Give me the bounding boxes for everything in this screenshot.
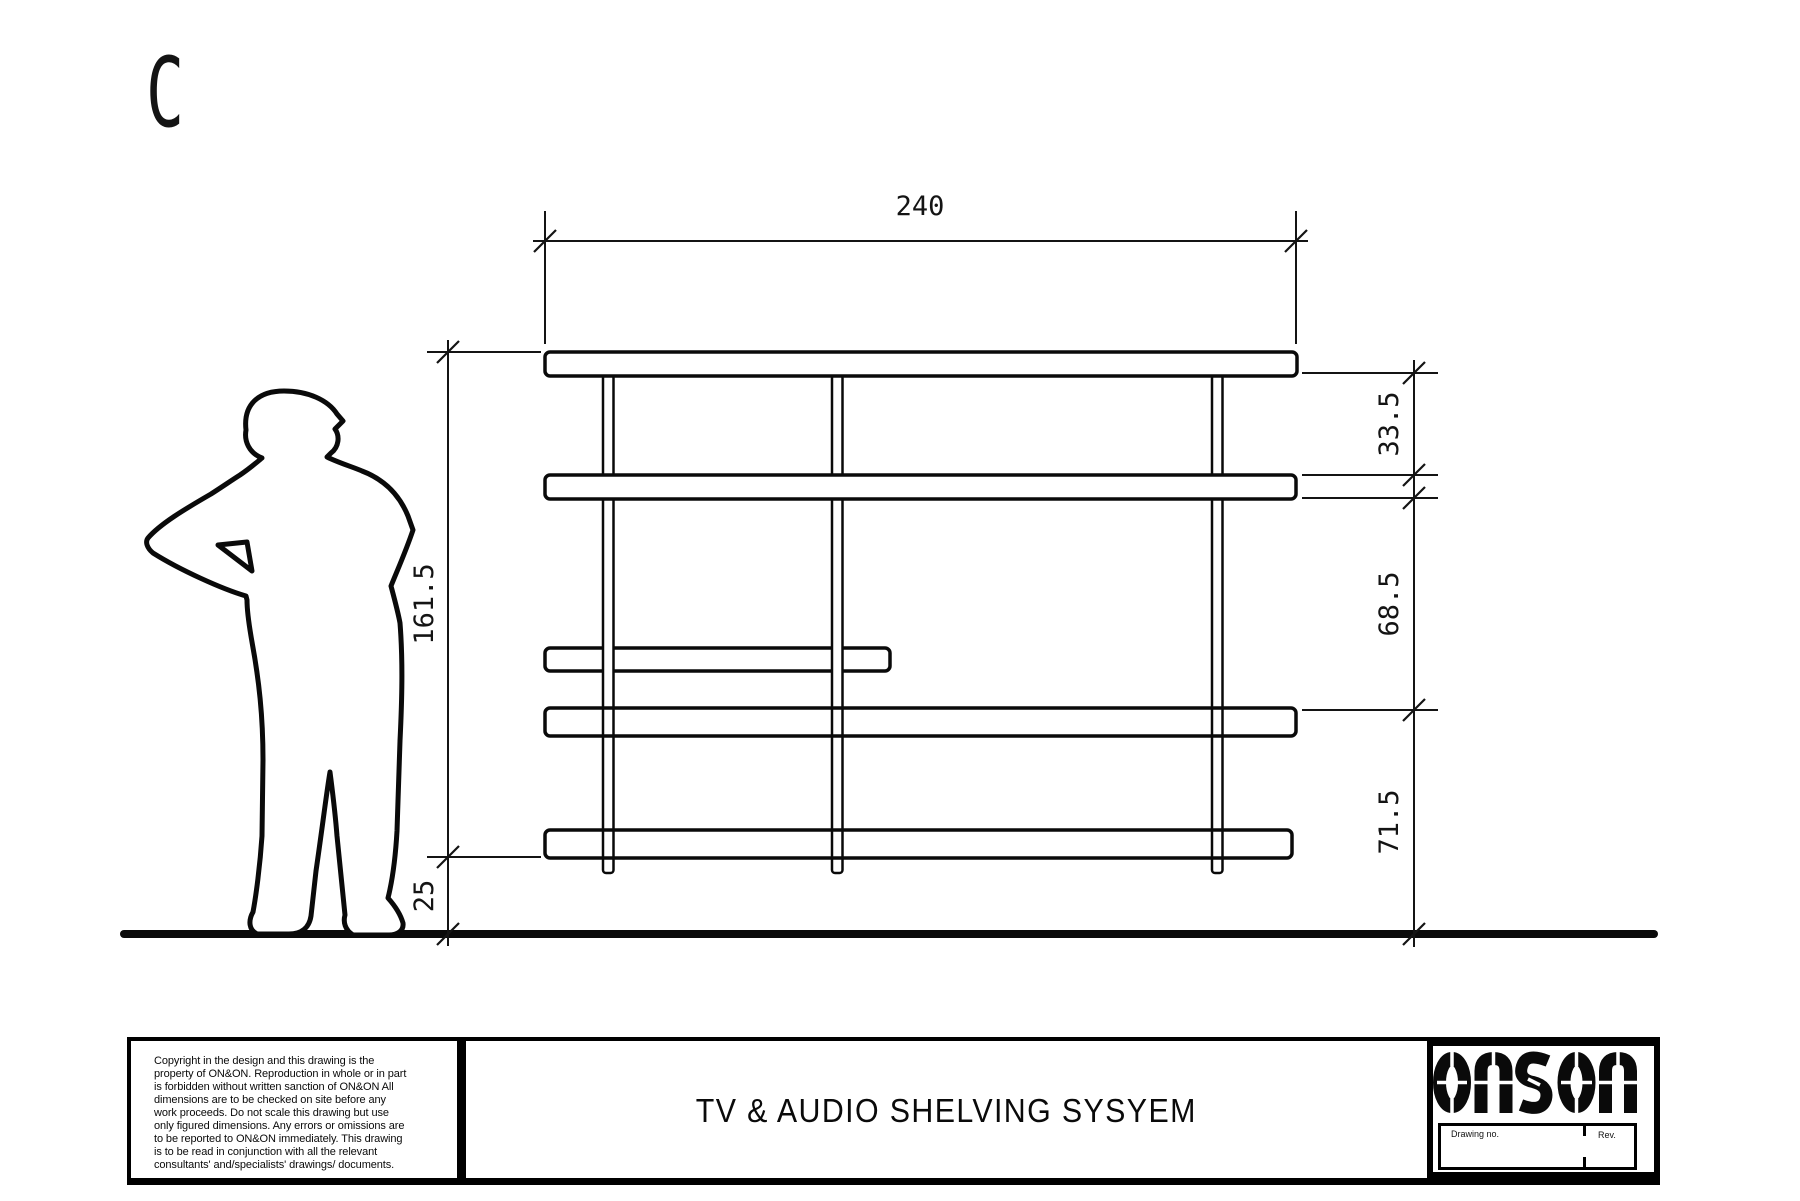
drawing-title: TV & AUDIO SHELVING SYSYEM [696, 1092, 1197, 1130]
dimension-right [1302, 360, 1438, 947]
copyright-line: is forbidden without written sanction of… [154, 1081, 454, 1094]
dimension-height-label: 161.5 [409, 563, 440, 644]
elevation-drawing: C 240 161.5 25 33.5 68.5 71.5 [0, 0, 1800, 1201]
drawing-no-label: Drawing no. [1451, 1129, 1499, 1139]
shelf-top [545, 352, 1297, 376]
shelf-fourth [545, 708, 1296, 736]
dimension-topgap-label: 33.5 [1374, 391, 1405, 456]
copyright-line: dimensions are to be checked on site bef… [154, 1094, 454, 1107]
title-block-divider [457, 1037, 466, 1185]
logo-glyph-n2 [1606, 1059, 1631, 1114]
dimension-botgap-label: 71.5 [1374, 789, 1405, 854]
subbox-divider-bottom [1583, 1157, 1586, 1167]
shelf-bottom [545, 830, 1292, 858]
post-middle [832, 375, 843, 873]
copyright-line: consultants' and/specialists' drawings/ … [154, 1159, 454, 1172]
person-silhouette [147, 391, 413, 935]
view-label: C [146, 39, 184, 150]
copyright-line: is to be read in conjunction with all th… [154, 1146, 454, 1159]
copyright-line: only figured dimensions. Any errors or o… [154, 1120, 454, 1133]
copyright-line: to be reported to ON&ON immediately. Thi… [154, 1133, 454, 1146]
copyright-note: Copyright in the design and this drawing… [154, 1055, 454, 1172]
rev-label: Rev. [1598, 1130, 1616, 1140]
technical-drawing-page: { "page": { "view_label": "C" }, "drawin… [0, 0, 1800, 1201]
dimension-midgap-label: 68.5 [1374, 571, 1405, 636]
copyright-line: Copyright in the design and this drawing… [154, 1055, 454, 1068]
shelf-second [545, 475, 1296, 499]
copyright-line: work proceeds. Do not scale this drawing… [154, 1107, 454, 1120]
dimension-base-label: 25 [409, 880, 440, 913]
dimension-left [427, 340, 541, 946]
posts [603, 375, 1223, 873]
logo-glyph-n1 [1481, 1059, 1506, 1114]
post-right [1212, 375, 1223, 873]
copyright-line: property of ON&ON. Reproduction in whole… [154, 1068, 454, 1081]
drawing-title-cell: TV & AUDIO SHELVING SYSYEM [466, 1037, 1427, 1185]
post-left [603, 375, 614, 873]
dimension-width [533, 211, 1308, 344]
drawing-number-box: Drawing no. Rev. [1438, 1123, 1637, 1170]
subbox-divider-top [1583, 1126, 1586, 1136]
dimension-width-label: 240 [896, 191, 945, 222]
